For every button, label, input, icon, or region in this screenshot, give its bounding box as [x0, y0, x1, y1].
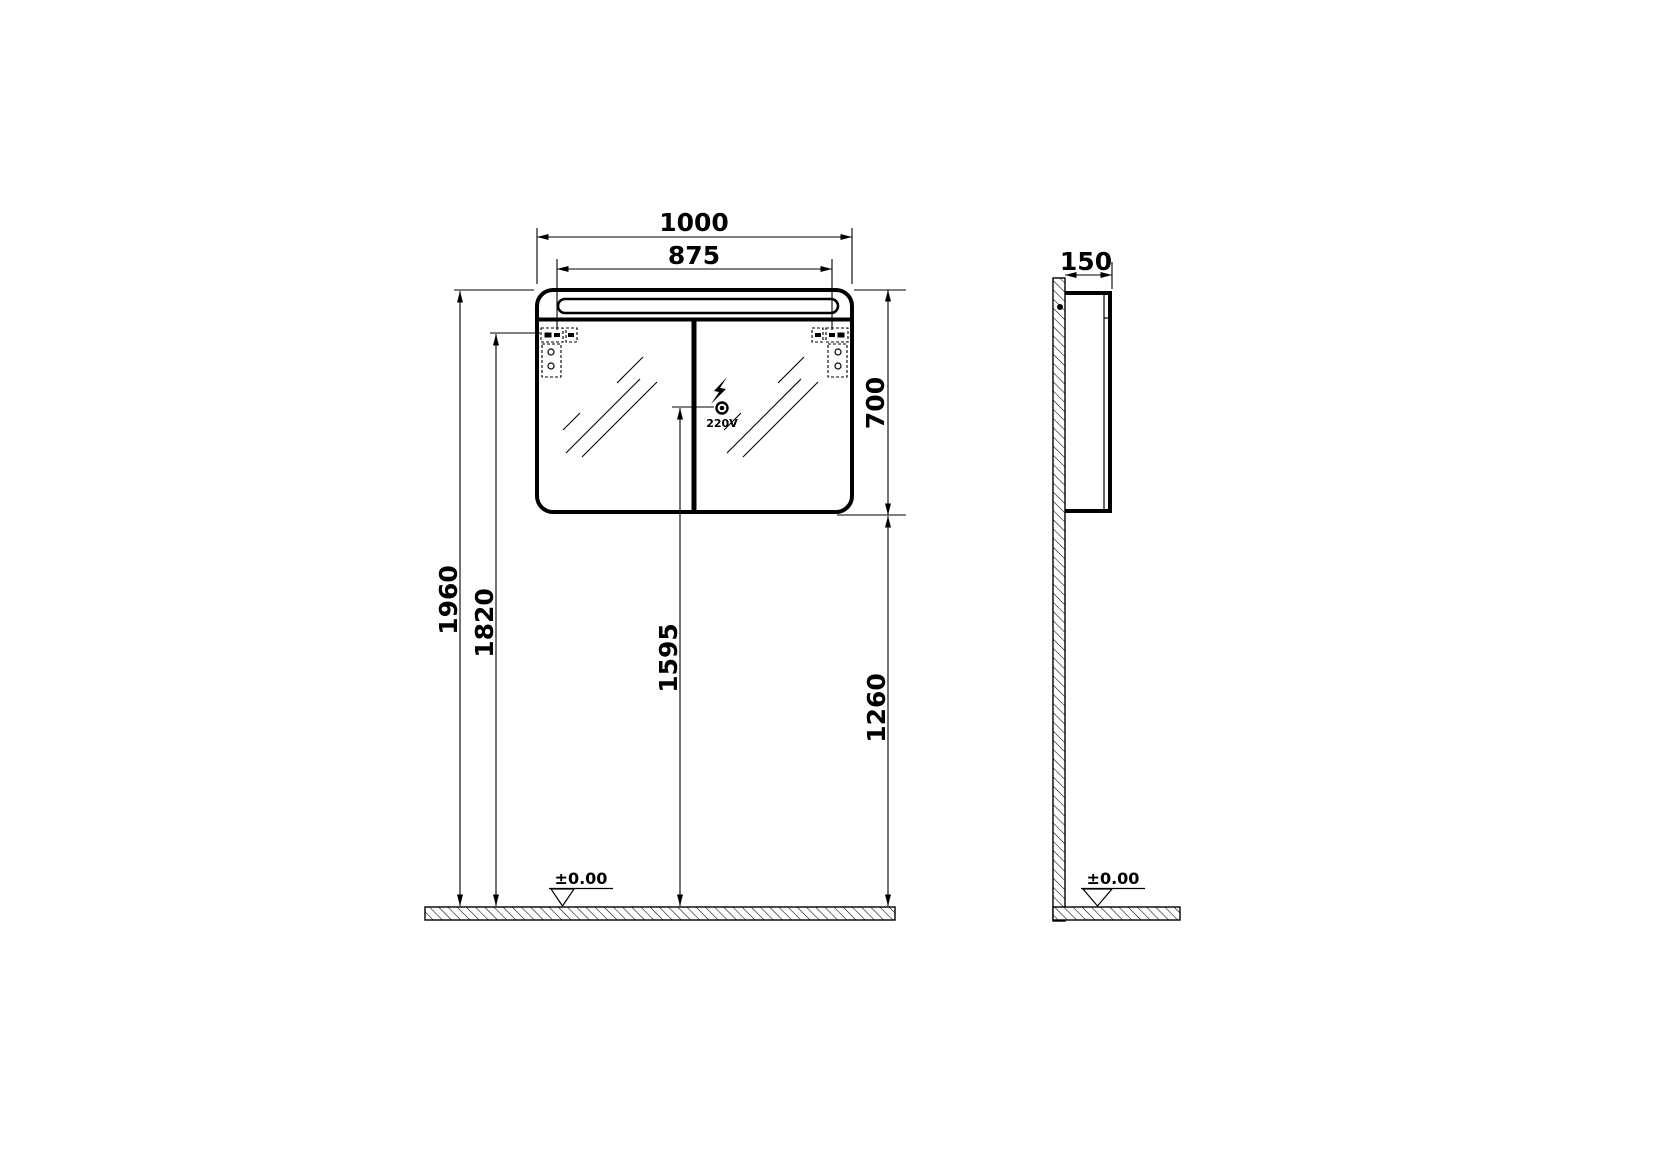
side-view: 150 ±0.00	[1053, 247, 1180, 921]
floor-level-label-front: ±0.00	[555, 869, 608, 888]
dim-socket-height-label: 1595	[654, 623, 683, 693]
floor-level-label-side: ±0.00	[1087, 869, 1140, 888]
dim-cabinet-bottom-height-label: 1260	[862, 673, 891, 743]
cabinet-side-outline	[1065, 293, 1110, 511]
dim-hinge-spacing: 875	[557, 241, 832, 330]
floor-datum-side: ±0.00	[1081, 869, 1145, 906]
hinge-right	[812, 328, 848, 377]
dim-depth: 150	[1060, 247, 1112, 289]
mounting-point-dot	[1057, 304, 1063, 310]
dim-socket-height: 1595	[654, 407, 714, 906]
front-view: 220V ±0.00 1000 875 700	[425, 208, 906, 920]
technical-drawing-canvas: 220V ±0.00 1000 875 700	[0, 0, 1653, 1167]
mirror-door-right	[724, 357, 818, 457]
dim-overall-width-label: 1000	[659, 208, 729, 237]
dim-cabinet-height-label: 700	[861, 377, 890, 429]
wall-section	[1053, 278, 1065, 921]
hinge-left	[541, 328, 577, 377]
floor-side	[1053, 907, 1180, 920]
mirror-door-left	[563, 357, 657, 457]
dim-hinge-spacing-label: 875	[668, 241, 720, 270]
dim-cabinet-bottom-height: 1260	[862, 516, 891, 906]
mirror-cabinet-drawing: 220V ±0.00 1000 875 700	[0, 0, 1653, 1167]
floor-datum-front: ±0.00	[549, 869, 613, 906]
socket-voltage-label: 220V	[706, 417, 738, 430]
datum-triangle-icon	[551, 889, 574, 906]
dim-cabinet-height: 700	[837, 290, 906, 515]
lightning-bolt-icon	[711, 377, 727, 404]
power-socket: 220V	[706, 377, 738, 430]
datum-triangle-icon	[1083, 889, 1112, 906]
dim-depth-label: 150	[1060, 247, 1112, 276]
floor-front	[425, 907, 895, 920]
dim-top-height-label: 1960	[434, 565, 463, 635]
dim-hinge-height-label: 1820	[470, 588, 499, 658]
light-strip	[558, 299, 838, 313]
dim-hinge-height: 1820	[470, 333, 540, 906]
